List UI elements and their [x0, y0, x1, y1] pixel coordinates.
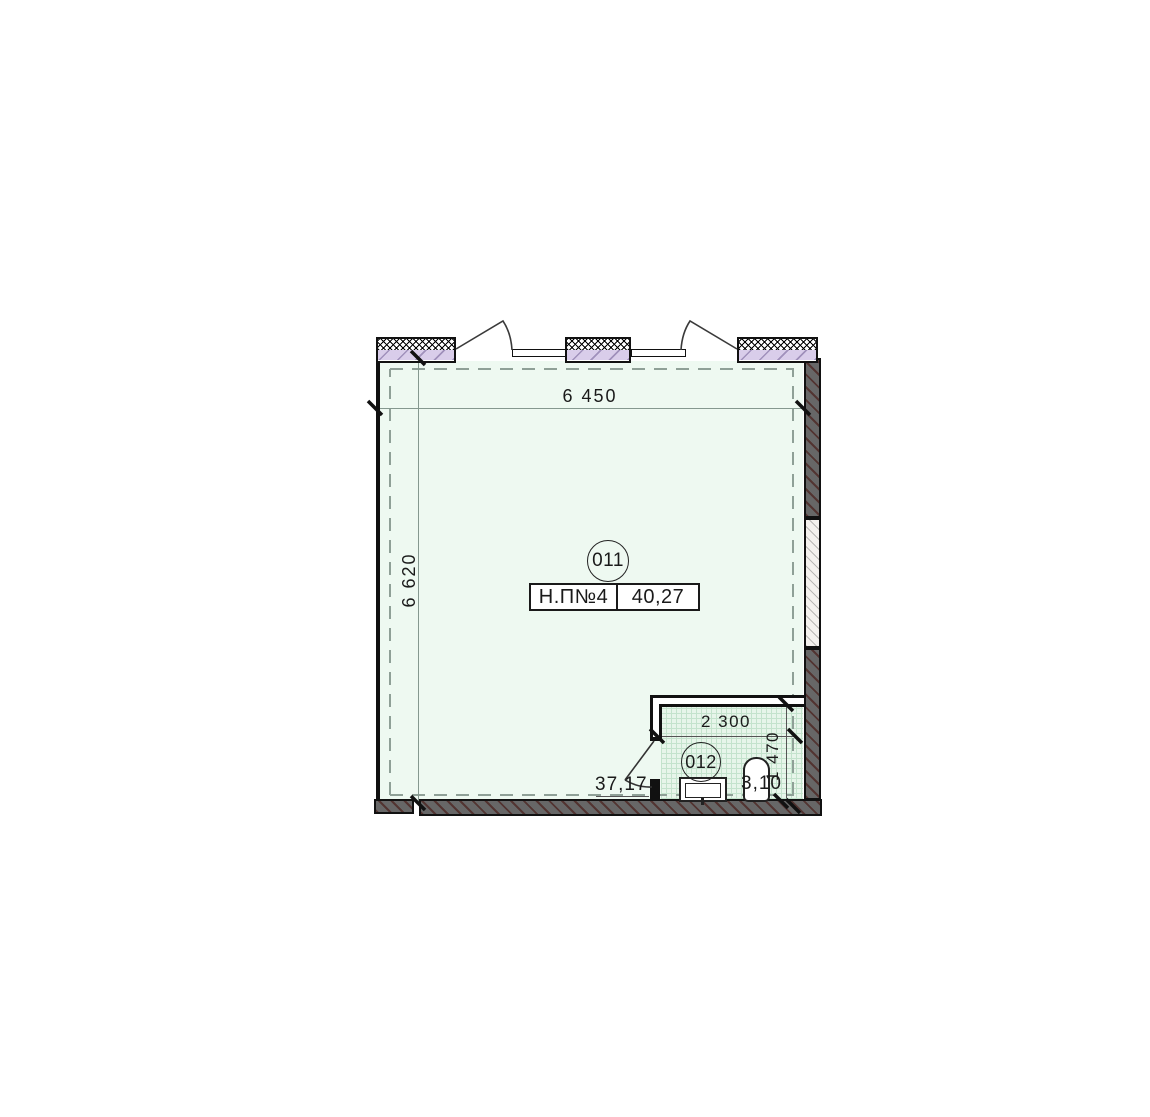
floor-plan: 011 Н.П№4 40,27 012 6 450 6 620 2 300 1 …: [0, 0, 1150, 1117]
bathroom-door-jamb: [650, 779, 660, 800]
main-room-area-label: 37,17: [595, 774, 648, 796]
dimension-ticks: [368, 351, 810, 813]
room-total-area-cell: 40,27: [618, 585, 698, 609]
room-name-cell: Н.П№4: [531, 585, 618, 609]
room-number-badge-012: 012: [681, 742, 721, 782]
room-label-table: Н.П№4 40,27: [529, 583, 700, 611]
room-number-badge-011: 011: [587, 540, 629, 582]
dimension-bath-width-label: 2 300: [686, 712, 766, 732]
dimension-width-label: 6 450: [540, 386, 640, 407]
room-number-012: 012: [685, 752, 717, 773]
window-swing-symbol-right: [681, 321, 737, 350]
room-number-011: 011: [592, 550, 624, 572]
plan-linework: [0, 0, 1150, 1117]
bathroom-area-label: 3,10: [741, 773, 782, 795]
window-swing-symbol-left: [456, 321, 512, 350]
dimension-depth-label: 6 620: [399, 545, 419, 615]
